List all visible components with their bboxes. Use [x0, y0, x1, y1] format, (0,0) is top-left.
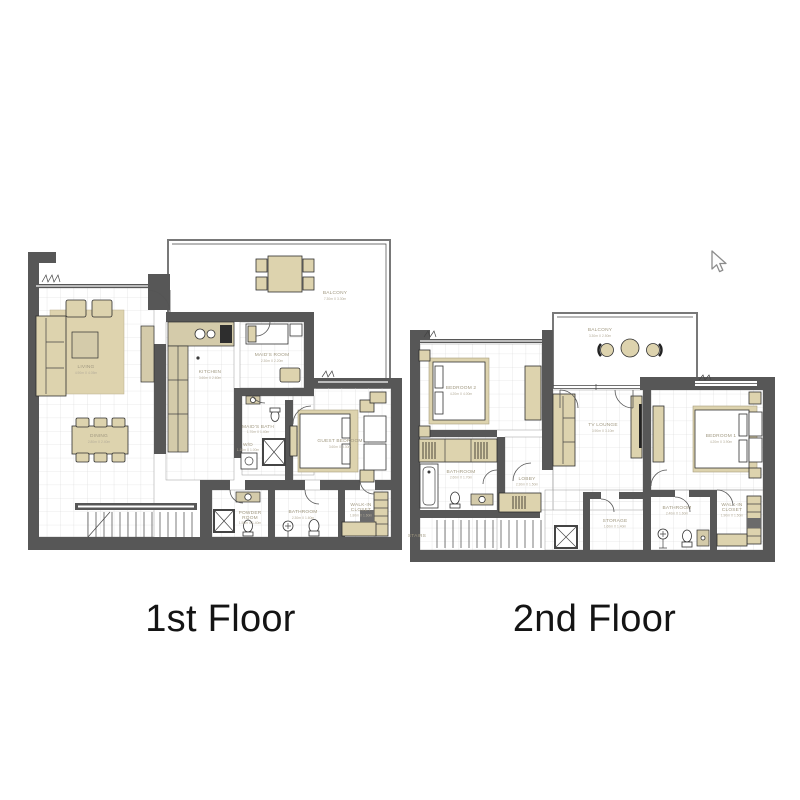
tv-console-bedroom1 — [653, 406, 664, 462]
tv-screen — [639, 404, 642, 448]
room-dims-walkin-1f: 1.80m X 1.60m — [350, 514, 373, 518]
sofa — [36, 316, 66, 396]
balcony-2f: BALCONY 3.30m X 2.50m — [553, 313, 697, 388]
balcony-table — [268, 256, 302, 292]
kitchen-island — [141, 326, 154, 382]
room-dims-maids-bath: 1.70m X 1.40m — [247, 430, 270, 434]
bath-toilet — [309, 520, 319, 533]
floorplan-1st-floor: BALCONY 7.30m X 3.30m — [20, 230, 410, 570]
room-label-balcony-1f: BALCONY — [323, 290, 348, 296]
room-dims-powder: 1.50m X 1.40m — [239, 521, 262, 525]
room-dims-bathroom-2f: 2.60m X 1.70m — [450, 476, 473, 480]
room-label-lobby: LOBBY — [519, 476, 537, 482]
room-dims-balcony-2f: 3.30m X 2.50m — [589, 334, 612, 338]
floor1-title: 1st Floor — [118, 598, 323, 641]
balcony-chair — [599, 344, 614, 357]
room-label-bathroom-1f: BATHROOM — [289, 509, 318, 515]
balcony-round-table — [621, 339, 639, 357]
room-dims-walkin-2f: 1.90m X 1.50m — [721, 514, 744, 518]
room-dims-storage: 1.60m X 1.40m — [604, 525, 627, 529]
maids-chair — [280, 368, 300, 382]
room-dims-guest-bedroom: 3.60m X 3.30m — [329, 445, 352, 449]
room-dims-bathroom2: 2.40m X 1.60m — [666, 512, 689, 516]
room-label-walkin-2f-2: CLOSET — [722, 507, 742, 513]
floorplan-2nd-floor: BALCONY 3.30m X 2.50m — [405, 300, 795, 570]
toilet — [683, 530, 692, 542]
room-label-living: LIVING — [78, 364, 95, 370]
stove — [220, 325, 232, 343]
window-bedroom2 — [420, 331, 542, 343]
bedroom2-closet — [419, 439, 497, 462]
room-label-bathroom2: BATHROOM — [663, 505, 692, 511]
floor2-title: 2nd Floor — [492, 598, 697, 641]
room-label-tv-lounge: TV LOUNGE — [588, 422, 618, 428]
washer — [241, 453, 257, 469]
balcony-chair — [647, 344, 662, 357]
room-dims-wd: 1.10m X 1.00m — [237, 448, 260, 452]
room-label-bathroom-2f: BATHROOM — [447, 469, 476, 475]
room-label-guest-bedroom: GUEST BEDROOM — [317, 438, 362, 444]
kitchen-sink — [195, 329, 205, 339]
room-dims-kitchen: 3.60m X 2.60m — [199, 376, 222, 380]
room-label-balcony-2f: BALCONY — [588, 327, 613, 333]
lobby-closet — [499, 493, 541, 512]
toilet — [451, 492, 460, 504]
room-label-walkin-1f-2: CLOSET — [351, 507, 371, 513]
shaft — [555, 526, 577, 548]
room-dims-lobby: 2.30m X 1.50m — [516, 483, 539, 487]
room-label-bedroom2: BEDROOM 2 — [446, 385, 477, 391]
room-label-kitchen: KITCHEN — [199, 369, 222, 375]
room-label-dining: DINING — [90, 433, 108, 439]
coffee-table — [72, 332, 98, 358]
room-label-stairs: STAIRS — [408, 533, 426, 539]
armchair — [92, 300, 112, 317]
wardrobe — [364, 416, 386, 442]
room-dims-maids-room: 2.30m X 2.20m — [261, 359, 284, 363]
mouse-cursor-icon — [710, 250, 732, 276]
armchair — [66, 300, 86, 317]
dining-furniture: DINING 2.80m X 2.40m — [72, 418, 128, 462]
screenshot-canvas: BALCONY 7.30m X 3.30m — [0, 0, 800, 800]
room-label-storage: STORAGE — [603, 518, 628, 524]
room-label-maids-room: MAID'S ROOM — [255, 352, 290, 358]
room-dims-tv-lounge: 3.90m X 3.10m — [592, 429, 615, 433]
lounge-sofa — [553, 394, 575, 466]
room-dims-bathroom-1f: 2.30m X 1.60m — [292, 516, 315, 520]
room-dims-balcony-1f: 7.30m X 3.30m — [324, 297, 347, 301]
room-dims-bedroom2: 4.20m X 4.00m — [450, 392, 473, 396]
shaft — [214, 510, 234, 532]
dresser — [525, 366, 541, 420]
room-label-bedroom1: BEDROOM 1 — [706, 433, 737, 439]
shaft — [263, 439, 285, 465]
room-dims-dining: 2.80m X 2.40m — [88, 440, 111, 444]
room-dims-living: 4.90m X 4.05m — [75, 371, 98, 375]
window-living — [36, 275, 148, 288]
room-dims-bedroom1: 4.20m X 3.90m — [710, 440, 733, 444]
